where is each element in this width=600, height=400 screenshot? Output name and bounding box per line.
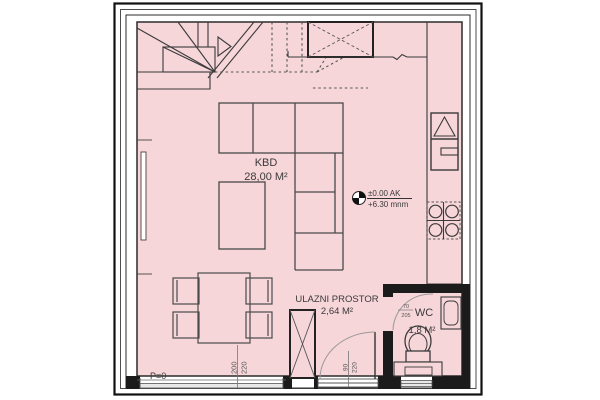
wc-door-height-dim: 205 (401, 313, 410, 319)
entry-wardrobe (290, 310, 315, 378)
window-height-dim: 220 (240, 361, 249, 374)
room-name-entry: ULAZNI PROSTOR (295, 294, 378, 305)
room-area-kbd: 28,00 M² (244, 171, 288, 183)
toilet-cistern (406, 351, 430, 362)
floor-plan-drawing: ±0.00 AK +6.30 mnm KBD 28,00 M² ULAZNI P… (0, 0, 600, 400)
room-area-entry: 2,64 M² (321, 306, 353, 317)
parapet-label: P=0 (150, 371, 166, 381)
entry-door-width-dim: 90 (343, 363, 350, 371)
elevation-lower-text: +6.30 mnm (368, 200, 409, 209)
room-name-kbd: KBD (255, 157, 278, 169)
elevation-upper-text: ±0.00 AK (368, 189, 401, 198)
floor-plan-canvas: ±0.00 AK +6.30 mnm KBD 28,00 M² ULAZNI P… (0, 0, 600, 400)
entry-threshold (318, 379, 378, 387)
wc-window (401, 381, 432, 387)
entry-door-height-dim: 220 (352, 362, 359, 373)
top-opening (308, 22, 373, 57)
wc-door-width-dim: 70 (403, 304, 409, 310)
window-width-dim: 200 (230, 361, 239, 374)
room-area-wc: 1,8 M² (409, 325, 436, 336)
room-name-wc: WC (415, 307, 433, 319)
